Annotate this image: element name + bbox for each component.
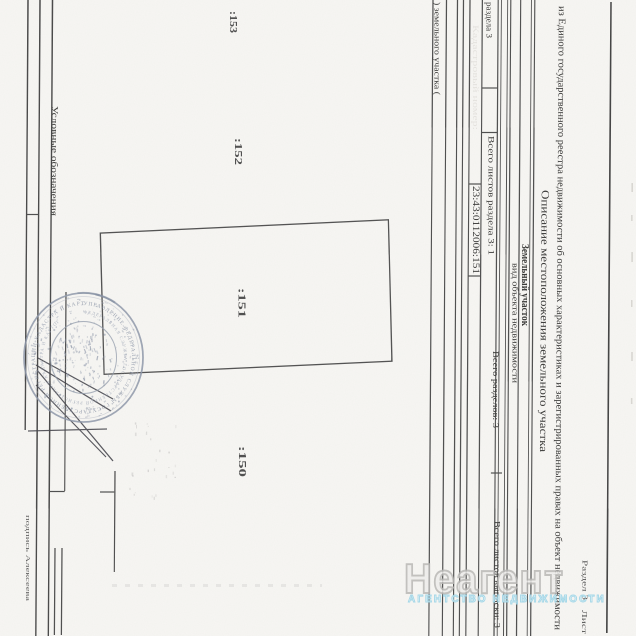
svg-text:Всего разделов: 3: Всего разделов: 3 [491, 351, 500, 428]
svg-text::150: :150 [236, 446, 248, 478]
svg-text:Всего листов раздела 3: 1: Всего листов раздела 3: 1 [487, 136, 496, 255]
svg-text:подпись Алексеева: подпись Алексеева [24, 515, 31, 601]
svg-text:Описание местоположения земель: Описание местоположения земельного участ… [537, 190, 551, 452]
svg-text:Земельный участок: Земельный участок [519, 244, 530, 327]
svg-text:Кадастровый номер:: Кадастровый номер: [471, 25, 480, 130]
svg-text::151: :151 [236, 288, 248, 318]
svg-text:ФЕДЕРАЛЬНАЯ СЛУЖБА ГОСУДАРСТВЕ: ФЕДЕРАЛЬНАЯ СЛУЖБА ГОСУДАРСТВЕННОЙ РЕГИС… [39, 309, 128, 405]
svg-text:Лист: Лист [580, 610, 589, 635]
svg-text:23:43:0112006:151: 23:43:0112006:151 [471, 186, 481, 274]
svg-text::152: :152 [232, 138, 244, 166]
svg-text:из Единого государственного ре: из Единого государственного реестра недв… [552, 6, 567, 631]
svg-text:) земельного участка (: ) земельного участка ( [433, 2, 443, 95]
svg-text:Условные обозначения: Условные обозначения [49, 106, 60, 216]
svg-text::153: :153 [227, 11, 239, 34]
svg-text:раздела 3: раздела 3 [484, 2, 493, 38]
svg-text:УПРАВЛЕНИЕ ФЕДЕРАЛЬНОЙ СЛУЖБЫ: УПРАВЛЕНИЕ ФЕДЕРАЛЬНОЙ СЛУЖБЫ ГОСУДАРСТВ… [31, 301, 136, 414]
svg-text:вид объекта недвижимости: вид объекта недвижимости [511, 263, 521, 384]
